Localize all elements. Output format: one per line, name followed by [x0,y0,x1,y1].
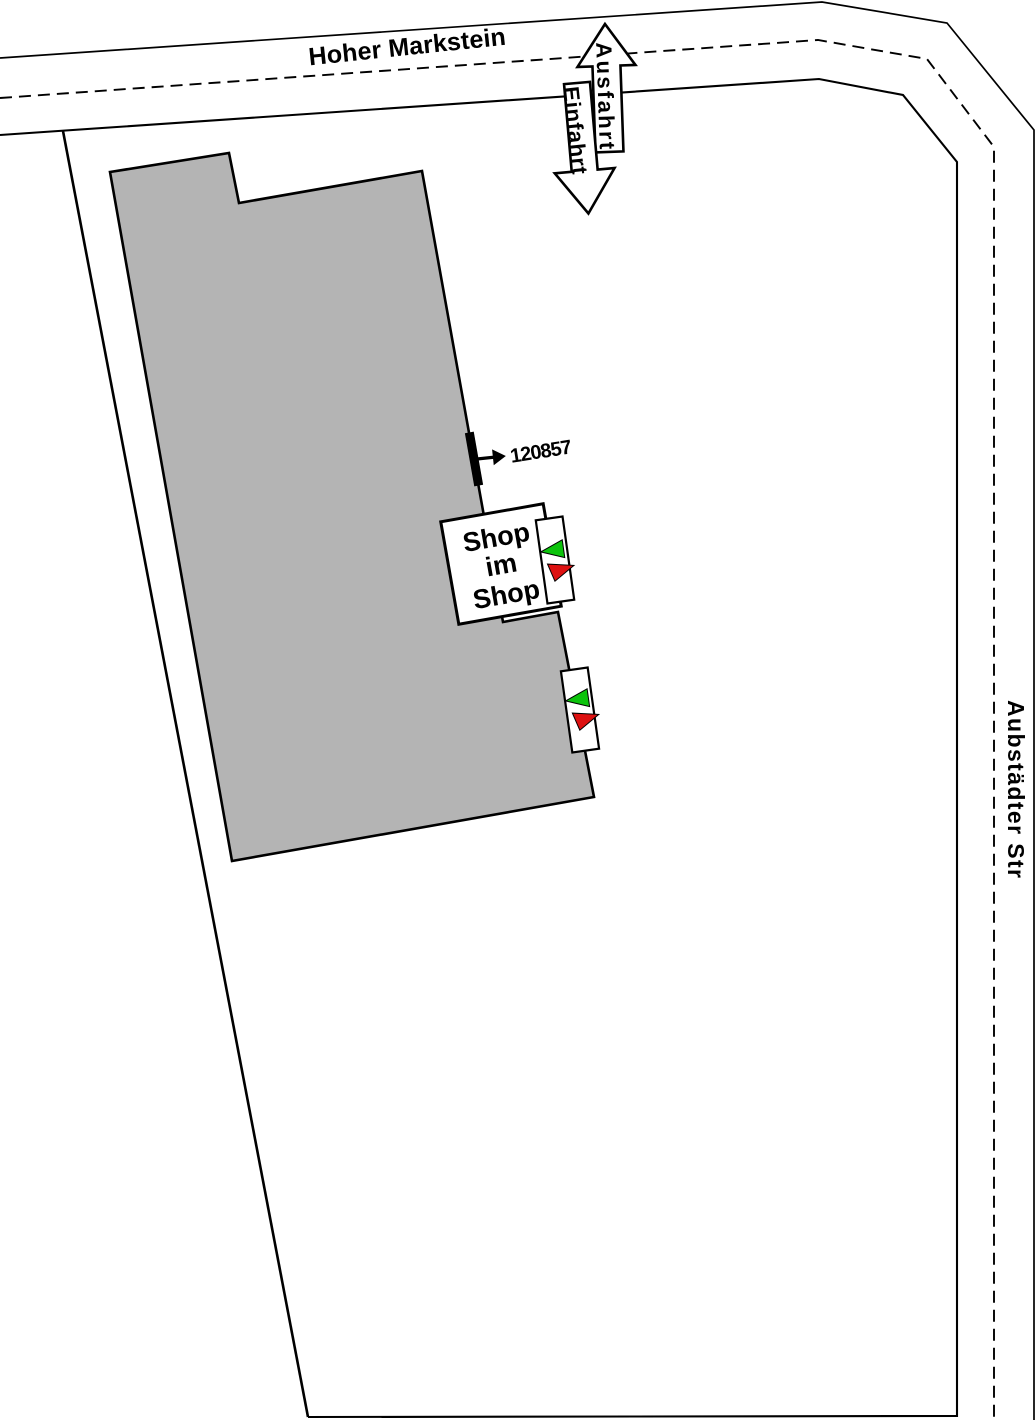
site-plan: 120857 Shop im Shop Ausfahrt Einfahrt Ho… [0,0,1036,1420]
door-id-label: 120857 [509,436,574,467]
door-marker: 120857 [465,432,574,487]
door-arrow-head-icon [492,448,507,465]
door-arrow [476,448,507,467]
street-name-right: Aubstädter Str [1003,700,1029,878]
